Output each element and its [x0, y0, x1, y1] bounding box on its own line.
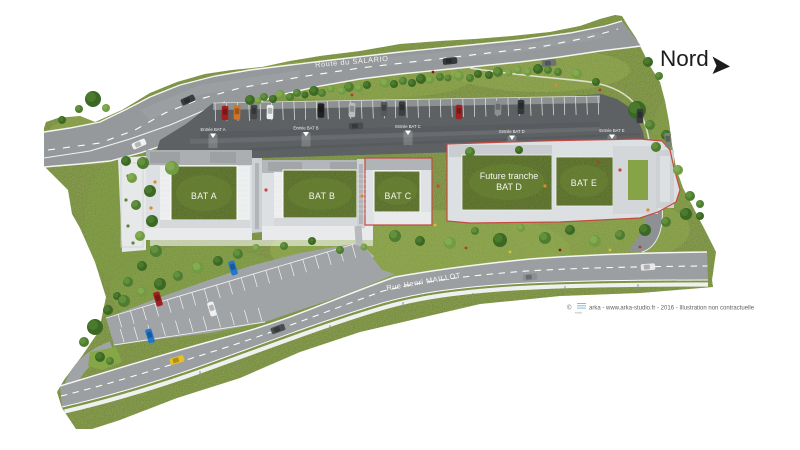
svg-text:studio: studio — [575, 311, 582, 315]
svg-text:BAT C: BAT C — [384, 191, 411, 201]
svg-text:Entrée BAT D: Entrée BAT D — [499, 129, 524, 134]
svg-text:Nord: Nord — [660, 46, 709, 71]
svg-text:BAT D: BAT D — [496, 182, 522, 192]
svg-text:BAT B: BAT B — [309, 191, 336, 201]
svg-text:Entrée BAT B: Entrée BAT B — [293, 126, 318, 131]
svg-text:Entrée BAT E: Entrée BAT E — [599, 128, 624, 133]
svg-text:Entrée BAT C: Entrée BAT C — [395, 124, 420, 129]
svg-text:Entrée BAT A: Entrée BAT A — [201, 127, 226, 132]
svg-text:BAT A: BAT A — [191, 191, 217, 201]
svg-text:©: © — [567, 305, 572, 312]
svg-text:arka - www.arka-studio.fr - 20: arka - www.arka-studio.fr - 2016 - Illus… — [589, 306, 755, 312]
svg-text:BAT E: BAT E — [571, 178, 598, 188]
svg-text:Future tranche: Future tranche — [480, 171, 539, 181]
